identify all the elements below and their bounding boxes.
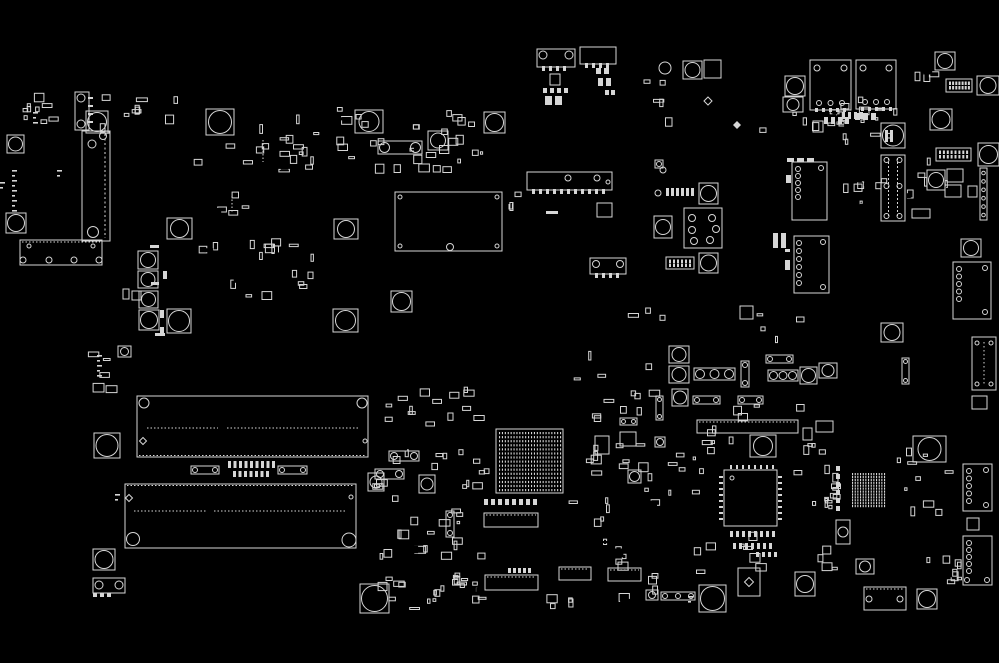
mount-hole[interactable] [654, 216, 672, 238]
mount-hole[interactable] [93, 549, 115, 570]
pad-row [785, 249, 790, 252]
smd-scatter-zone [796, 546, 837, 571]
mount-hole[interactable] [206, 109, 234, 135]
transformer-component[interactable] [810, 60, 851, 112]
pad-row [150, 245, 159, 248]
mount-hole[interactable] [7, 135, 24, 153]
pad-row [543, 88, 568, 93]
pad-row [598, 78, 611, 86]
inductor-component[interactable] [741, 361, 749, 387]
smd-scatter-zone [897, 448, 953, 518]
board-connector[interactable] [484, 513, 538, 527]
smd-component [912, 209, 930, 218]
board-connector[interactable] [93, 578, 125, 593]
smd-scatter-zone [88, 352, 117, 393]
board-connector[interactable] [20, 240, 102, 265]
mount-hole[interactable] [484, 112, 505, 133]
silkscreen-microtext [0, 182, 5, 189]
header-connector[interactable] [881, 155, 905, 221]
pad-row [787, 158, 814, 162]
smd-component [740, 306, 753, 319]
inductor-component[interactable] [191, 466, 219, 474]
smd-scatter-zone [644, 80, 677, 133]
mount-hole[interactable] [334, 219, 358, 239]
mount-hole[interactable] [683, 61, 702, 79]
bga-chip-small[interactable] [852, 473, 885, 507]
board-connector[interactable] [537, 49, 575, 71]
test-point [655, 190, 661, 196]
polarity-marker [704, 97, 712, 105]
transformer-component[interactable] [856, 60, 896, 111]
pin-header-strip[interactable] [980, 168, 987, 220]
smd-component [704, 60, 721, 78]
inductor-component[interactable] [656, 396, 663, 420]
polarity-marker [733, 121, 741, 129]
board-connector[interactable] [580, 47, 616, 68]
pad-row [545, 96, 562, 105]
smd-component [816, 421, 833, 432]
smd-scatter-zone [569, 444, 661, 527]
io-connector[interactable] [792, 162, 827, 220]
smd-scatter-zone [256, 135, 307, 163]
board-connector[interactable] [608, 568, 641, 581]
inductor-component[interactable] [693, 396, 720, 404]
smd-scatter-zone [473, 586, 486, 603]
mount-hole[interactable] [935, 52, 955, 70]
pin-grid-connector[interactable] [936, 148, 971, 161]
capacitor-component[interactable] [428, 131, 448, 150]
smd-scatter-zone [376, 387, 484, 439]
mount-hole[interactable] [795, 572, 815, 596]
mount-hole[interactable] [750, 435, 776, 457]
mount-hole[interactable] [917, 589, 937, 609]
io-connector[interactable] [963, 464, 992, 511]
smd-scatter-zone [621, 308, 666, 415]
silkscreen-microtext [33, 112, 38, 124]
edge-connector[interactable] [972, 337, 996, 390]
silkscreen-microtext [115, 494, 120, 501]
pad-row [93, 593, 111, 597]
mount-hole[interactable] [672, 389, 688, 406]
mount-hole[interactable] [669, 346, 689, 363]
pad-row [233, 471, 269, 477]
smd-scatter-zone [760, 96, 901, 144]
mount-hole[interactable] [669, 366, 689, 383]
pad-row [666, 188, 694, 196]
pad-row [155, 333, 165, 336]
smd-component [972, 396, 987, 409]
mount-hole[interactable] [646, 590, 658, 600]
mount-hole[interactable] [881, 323, 903, 342]
inductor-component[interactable] [278, 466, 307, 474]
board-connector[interactable] [559, 567, 591, 580]
bga-chip-large[interactable] [496, 429, 563, 493]
pad-row [228, 461, 275, 468]
pad-row [785, 260, 790, 270]
ic-pin1-marker[interactable] [738, 568, 760, 596]
io-connector[interactable] [794, 236, 829, 293]
mount-hole[interactable] [961, 239, 981, 257]
smd-component [123, 289, 129, 299]
pad-row [160, 310, 164, 318]
smd-scatter-zone [840, 179, 886, 213]
smd-scatter-zone [337, 108, 484, 174]
mount-hole[interactable] [139, 291, 158, 308]
board-connector[interactable] [485, 575, 538, 590]
smd-component [803, 428, 812, 440]
inductor-component[interactable] [766, 355, 793, 363]
smd-scatter-zone [205, 192, 249, 215]
smd-scatter-zone [794, 446, 841, 509]
smd-scatter-zone [574, 349, 614, 427]
smd-component [132, 291, 141, 300]
inductor-component[interactable] [620, 418, 637, 425]
mount-hole[interactable] [699, 585, 726, 612]
pad-row [733, 543, 772, 549]
mount-hole[interactable] [118, 346, 131, 357]
mount-hole[interactable] [699, 183, 718, 204]
mount-hole[interactable] [167, 309, 191, 333]
mount-hole[interactable] [139, 310, 159, 330]
board-connector[interactable] [527, 172, 612, 194]
pad-row [508, 568, 531, 573]
mount-hole[interactable] [94, 433, 120, 458]
mount-hole[interactable] [655, 437, 665, 447]
qfp-chip[interactable] [719, 465, 782, 526]
board-drawing [0, 0, 999, 663]
mount-hole[interactable] [167, 218, 192, 239]
inductor-component[interactable] [902, 358, 909, 384]
vertical-connector[interactable] [82, 131, 110, 241]
pad-row [773, 233, 786, 248]
mount-hole[interactable] [785, 76, 805, 96]
crystal-component[interactable] [684, 208, 722, 248]
inductor-component[interactable] [694, 368, 735, 380]
smd-component [550, 74, 560, 85]
capacitor-component[interactable] [856, 559, 874, 574]
pad-row [756, 552, 777, 557]
mount-hole[interactable] [360, 584, 389, 613]
test-point [659, 62, 671, 74]
smd-scatter-zone [668, 443, 714, 495]
mount-hole[interactable] [819, 363, 837, 378]
mount-hole[interactable] [6, 213, 26, 233]
smd-scatter-zone [927, 556, 962, 584]
memory-slot-2[interactable] [125, 484, 356, 548]
capacitor-component[interactable] [836, 520, 850, 544]
mount-hole[interactable] [391, 291, 412, 312]
mount-hole[interactable] [800, 367, 817, 384]
mount-hole[interactable] [977, 76, 999, 95]
pad-row [605, 90, 615, 95]
silkscreen-microtext [688, 596, 693, 603]
mount-hole[interactable] [699, 253, 718, 273]
smd-component [947, 169, 963, 182]
smd-scatter-zone [199, 239, 318, 302]
inductor-component[interactable] [738, 396, 763, 404]
mount-hole[interactable] [333, 309, 358, 332]
ic-chip-large[interactable] [395, 192, 502, 251]
pcb-boardview-canvas[interactable] [0, 0, 999, 663]
pad-row [596, 68, 609, 74]
board-connector[interactable] [864, 587, 906, 610]
pad-row [786, 175, 791, 183]
mount-hole[interactable] [913, 436, 946, 462]
pad-row [484, 499, 537, 505]
capacitor-component[interactable] [419, 475, 435, 493]
smd-scatter-zone [194, 115, 319, 172]
smd-component [597, 203, 612, 217]
inductor-component[interactable] [768, 370, 798, 381]
smd-scatter-zone [373, 448, 489, 559]
io-connector[interactable] [963, 536, 992, 585]
silkscreen-microtext [12, 170, 17, 212]
mount-hole[interactable] [978, 143, 999, 166]
silkscreen-microtext [57, 170, 62, 177]
mount-hole[interactable] [138, 251, 158, 269]
pad-row [151, 282, 159, 285]
board-connector[interactable] [590, 258, 626, 278]
pin-grid-connector[interactable] [946, 79, 972, 92]
pad-row [163, 271, 167, 279]
pad-row [546, 211, 558, 214]
smd-scatter-zone [757, 314, 804, 350]
io-connector[interactable] [953, 262, 991, 319]
mount-hole[interactable] [138, 271, 158, 288]
smd-component [967, 518, 979, 530]
pad-row [855, 113, 876, 120]
pad-row [885, 130, 893, 142]
memory-slot-1[interactable] [137, 396, 368, 457]
pin-grid-connector[interactable] [666, 257, 694, 269]
smd-scatter-zone [501, 186, 530, 211]
smd-component [968, 186, 977, 197]
pad-row [160, 327, 164, 333]
mount-hole[interactable] [355, 110, 383, 133]
mount-hole[interactable] [930, 109, 952, 130]
mount-hole[interactable] [783, 97, 803, 112]
smd-scatter-zone [453, 573, 468, 587]
